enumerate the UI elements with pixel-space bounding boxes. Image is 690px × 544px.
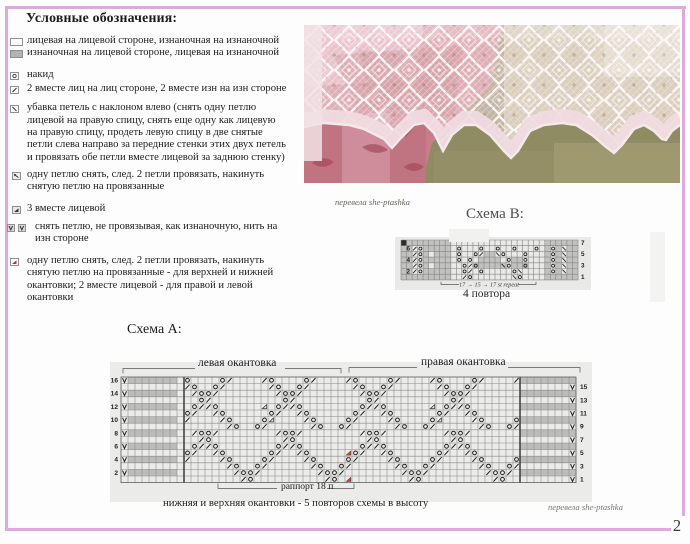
svg-text:4: 4 xyxy=(406,257,410,264)
svg-text:3: 3 xyxy=(580,463,584,470)
svg-text:16: 16 xyxy=(111,378,119,385)
svg-text:12: 12 xyxy=(111,404,119,411)
svg-text:6: 6 xyxy=(114,444,118,451)
svg-text:15: 15 xyxy=(580,384,588,391)
svg-text:10: 10 xyxy=(111,417,119,424)
svg-text:5: 5 xyxy=(581,251,585,258)
svg-text:3: 3 xyxy=(581,263,585,270)
svg-text:1: 1 xyxy=(580,477,584,484)
svg-text:8: 8 xyxy=(114,430,118,437)
svg-text:9: 9 xyxy=(580,424,584,431)
svg-text:1: 1 xyxy=(581,274,585,281)
svg-text:5: 5 xyxy=(580,450,584,457)
svg-text:7: 7 xyxy=(580,437,584,444)
svg-text:2: 2 xyxy=(114,470,118,477)
svg-text:13: 13 xyxy=(580,397,588,404)
svg-text:11: 11 xyxy=(580,411,587,418)
svg-text:4: 4 xyxy=(114,457,118,464)
svg-text:14: 14 xyxy=(111,391,119,398)
svg-text:6: 6 xyxy=(406,246,410,253)
svg-text:2: 2 xyxy=(406,268,410,275)
svg-text:7: 7 xyxy=(581,240,585,247)
